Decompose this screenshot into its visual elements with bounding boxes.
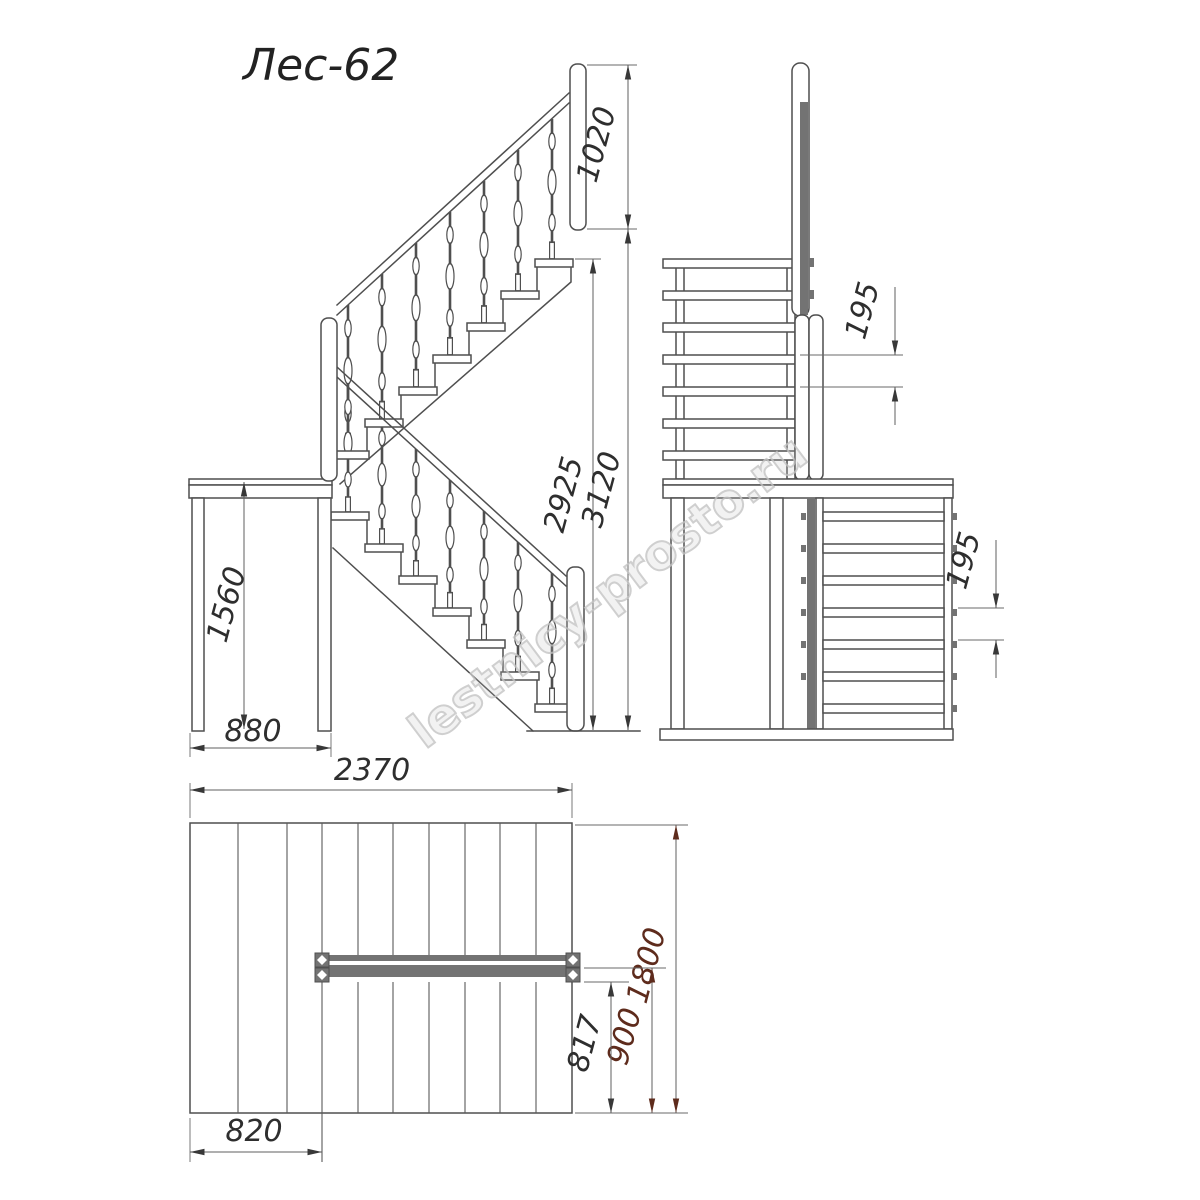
plan-lower-flight-treads	[358, 982, 536, 1113]
dim-text-landing-length: 820	[225, 1114, 282, 1149]
dim-text-opening-width: 900	[601, 1004, 650, 1068]
front-platform-leg-middle	[770, 498, 783, 729]
front-elevation-view: 195 195	[660, 63, 1004, 740]
lower-flight-stringer	[333, 520, 537, 731]
front-lower-flight	[801, 498, 957, 729]
plan-upper-flight-treads	[358, 823, 536, 955]
drawing-title: Лес-62	[241, 40, 399, 91]
front-upper-flight	[663, 259, 795, 479]
lower-flight-handrail	[337, 367, 566, 586]
dim-text-total-width: 1800	[620, 924, 674, 1007]
plan-landing-boards	[238, 823, 322, 1162]
front-lower-balusters-end-on	[807, 498, 815, 729]
landing-newel-post	[321, 318, 337, 481]
drawing-page: Лес-62	[0, 0, 1200, 1200]
dim-text-landing-height: 1560	[200, 563, 254, 646]
front-lower-stringer-right	[944, 498, 952, 729]
plan-newel-left-pair	[315, 953, 329, 982]
platform-leg-left	[192, 498, 204, 731]
dim-text-flight-width: 817	[561, 1011, 610, 1075]
technical-drawing-canvas: Лес-62	[0, 0, 1200, 1200]
dim-text-total-length: 2370	[334, 753, 410, 788]
dim-text-landing-depth: 880	[224, 714, 281, 749]
front-top-newel	[792, 63, 814, 316]
upper-flight-balusters	[344, 119, 556, 451]
plan-newel-right-pair	[566, 953, 580, 982]
plan-view: 2370 1800 900 817 820	[190, 753, 688, 1162]
plan-handrails	[315, 953, 580, 982]
dimension-landing-height: 1560	[200, 482, 254, 729]
dimension-total-length: 2370	[190, 753, 572, 818]
front-floor-bar	[660, 729, 953, 740]
dimension-landing-length: 820	[190, 1114, 322, 1162]
dim-text-upper-riser: 195	[839, 278, 888, 342]
front-handrail-end-on	[800, 102, 808, 315]
front-landing-newel-right	[809, 315, 823, 480]
front-lower-stringer-left	[816, 498, 823, 729]
front-landing-newel-left	[795, 315, 809, 480]
dimension-landing-depth: 880	[190, 714, 331, 757]
front-platform-leg-left	[671, 498, 684, 729]
side-elevation-view: 1020 2925 3120 1560 880	[189, 64, 640, 757]
platform-leg-right	[318, 498, 331, 731]
bottom-newel-post	[567, 567, 584, 731]
